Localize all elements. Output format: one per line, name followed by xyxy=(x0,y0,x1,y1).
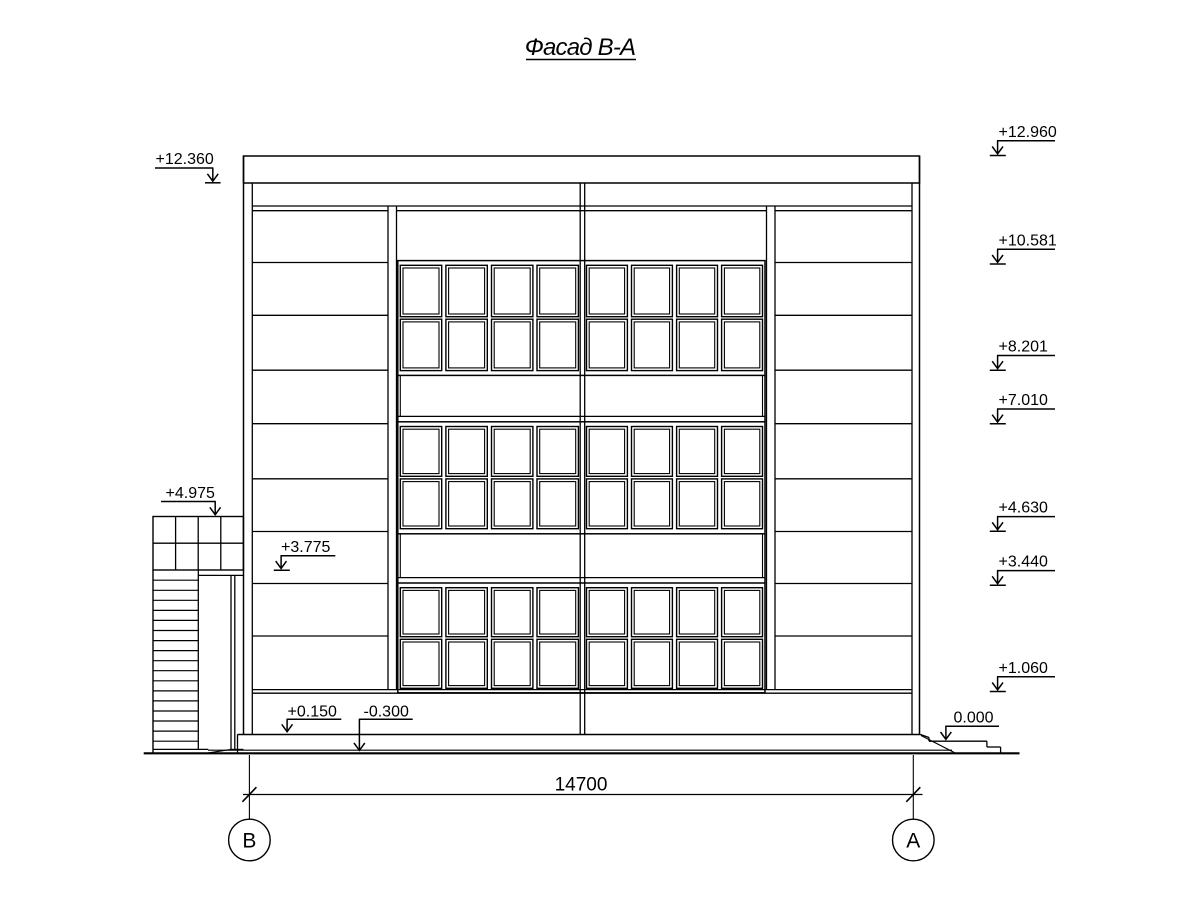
svg-text:-0.300: -0.300 xyxy=(364,703,409,720)
svg-text:0.000: 0.000 xyxy=(954,709,994,726)
svg-text:+4.630: +4.630 xyxy=(999,500,1048,517)
svg-text:Фасад В-А: Фасад В-А xyxy=(525,34,636,61)
svg-text:+8.201: +8.201 xyxy=(999,339,1048,356)
svg-text:+1.060: +1.060 xyxy=(999,660,1048,677)
svg-text:+3.440: +3.440 xyxy=(999,554,1048,571)
svg-text:14700: 14700 xyxy=(555,775,608,796)
svg-text:+12.360: +12.360 xyxy=(156,151,214,168)
svg-text:+10.581: +10.581 xyxy=(999,232,1057,249)
svg-text:+7.010: +7.010 xyxy=(999,392,1048,409)
svg-text:+4.975: +4.975 xyxy=(166,485,215,502)
svg-text:+12.960: +12.960 xyxy=(999,124,1057,141)
svg-text:+0.150: +0.150 xyxy=(288,703,337,720)
svg-text:А: А xyxy=(906,830,920,853)
svg-text:+3.775: +3.775 xyxy=(281,539,330,556)
svg-text:В: В xyxy=(242,830,256,853)
